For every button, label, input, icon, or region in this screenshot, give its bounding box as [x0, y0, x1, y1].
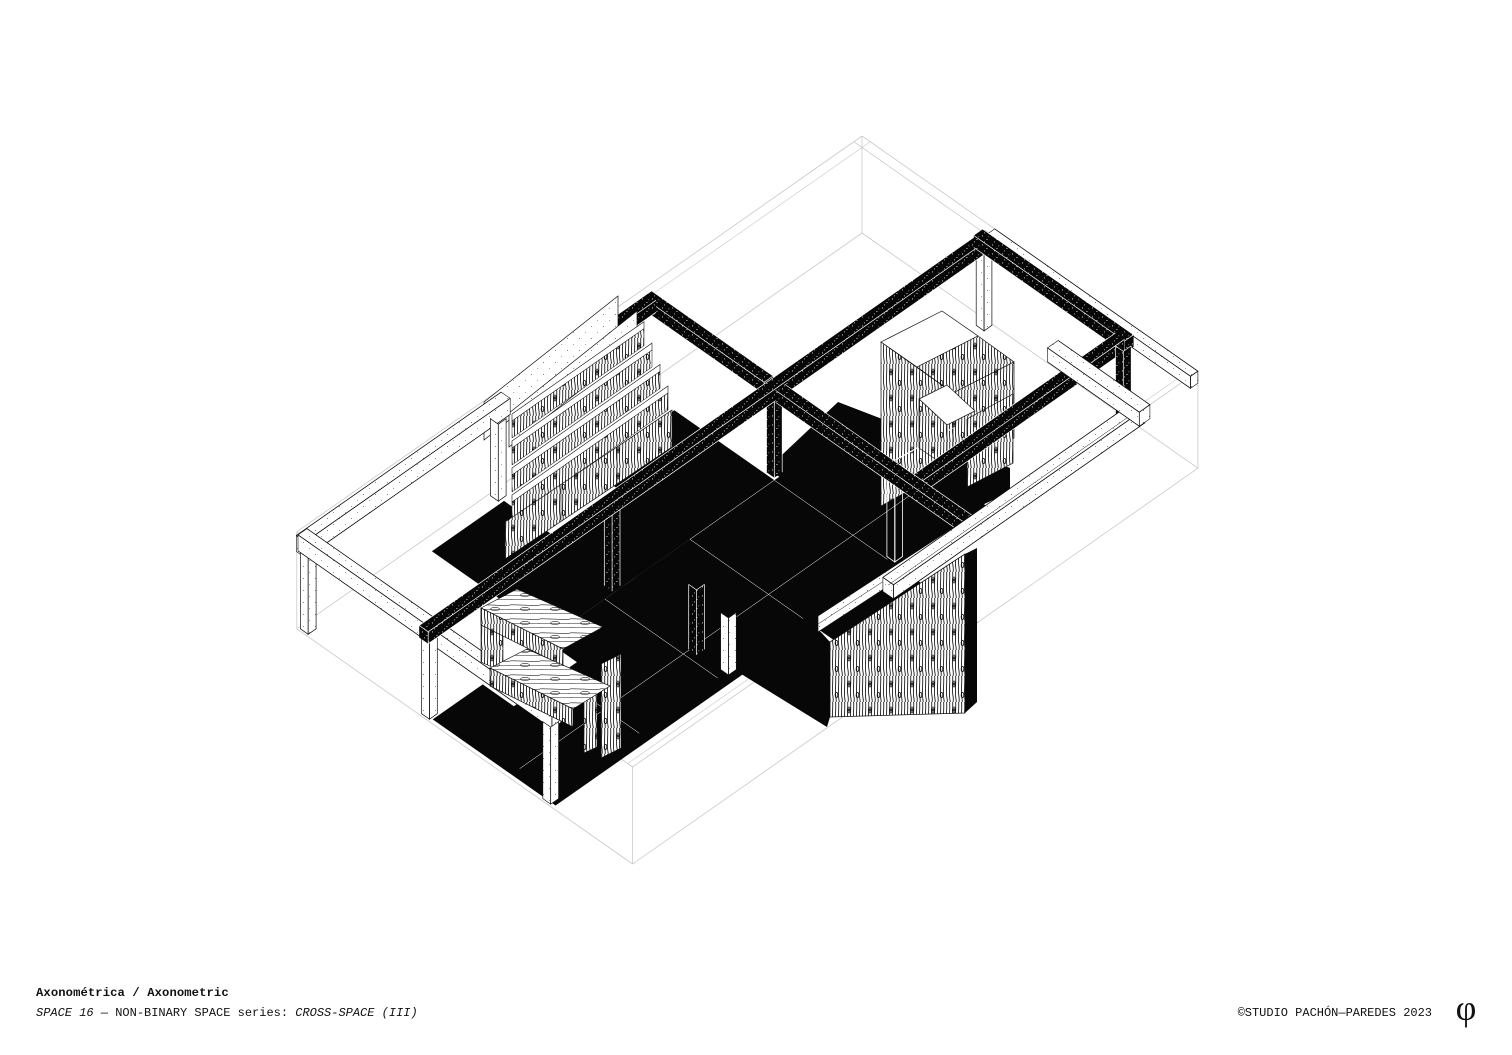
svg-text:©STUDIO PACHÓN—PAREDES 2023: ©STUDIO PACHÓN—PAREDES 2023	[1238, 1005, 1432, 1020]
svg-text:Axonométrica / Axonometric: Axonométrica / Axonometric	[36, 986, 229, 1000]
svg-text:SPACE 16 — NON-BINARY SPACE: SPACE 16 — NON-BINARY SPACE series: CROS…	[36, 1006, 418, 1020]
svg-text:φ: φ	[1456, 988, 1477, 1028]
